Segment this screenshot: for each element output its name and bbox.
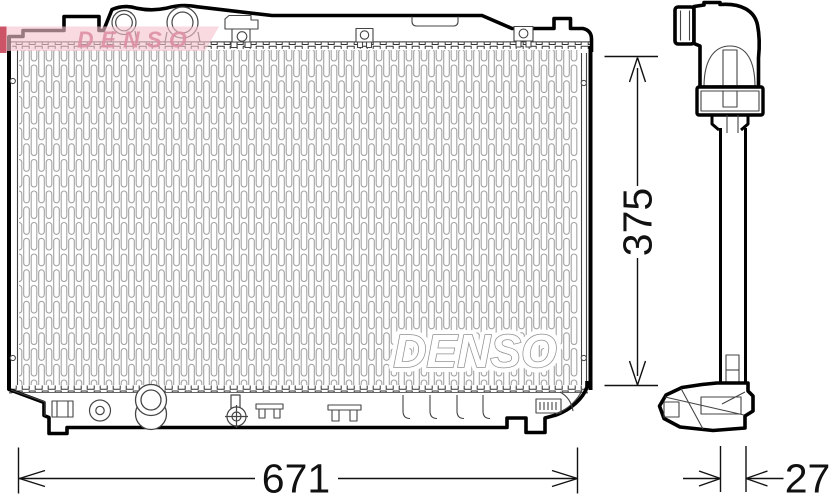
depth-dimension-label: 27 bbox=[785, 456, 831, 500]
inlet-elbow-pipe bbox=[675, 3, 763, 131]
radiator-side-view bbox=[660, 3, 764, 431]
left-side-plate bbox=[9, 36, 18, 390]
corner-watermark-red-stripe bbox=[0, 27, 7, 54]
lower-mounting-bracket bbox=[660, 383, 754, 431]
boss-circle bbox=[90, 400, 111, 421]
outlet-pipe bbox=[136, 385, 167, 430]
corner-brand-watermark: DENSO bbox=[0, 27, 219, 54]
bottom-header-seam bbox=[9, 386, 588, 393]
dimension-depth bbox=[683, 446, 784, 492]
drawing-canvas: 375 671 27 DENSO DENSO DENSO bbox=[0, 0, 833, 500]
depth-extension-ticks bbox=[721, 446, 747, 492]
width-dimension-label: 671 bbox=[262, 456, 330, 500]
tank-recess bbox=[412, 17, 458, 27]
core-brand-watermark: DENSO DENSO bbox=[393, 325, 557, 377]
radiator-technical-drawing: 375 671 27 DENSO DENSO DENSO bbox=[0, 0, 833, 500]
core-side-profile bbox=[721, 115, 746, 385]
corner-watermark-text: DENSO bbox=[77, 27, 194, 53]
right-side-plate bbox=[581, 46, 590, 390]
core-watermark-text: DENSO bbox=[393, 325, 557, 377]
height-dimension-label: 375 bbox=[615, 188, 661, 256]
